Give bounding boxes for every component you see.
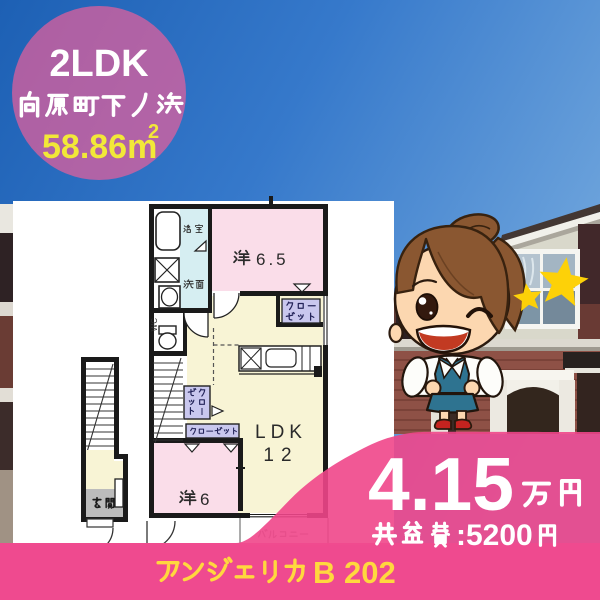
svg-text:6.5: 6.5 [256, 250, 289, 269]
svg-text::5200: :5200 [456, 519, 533, 552]
svg-text:12: 12 [263, 445, 298, 466]
svg-text:6: 6 [200, 490, 209, 509]
svg-text:58.86m: 58.86m [42, 128, 157, 166]
svg-text:4.15: 4.15 [368, 442, 514, 526]
svg-text:LDK: LDK [255, 422, 307, 443]
svg-text:2LDK: 2LDK [49, 43, 149, 85]
svg-text:WC: WC [150, 318, 159, 332]
svg-text:B 202: B 202 [313, 555, 396, 590]
svg-text:2: 2 [148, 121, 159, 143]
